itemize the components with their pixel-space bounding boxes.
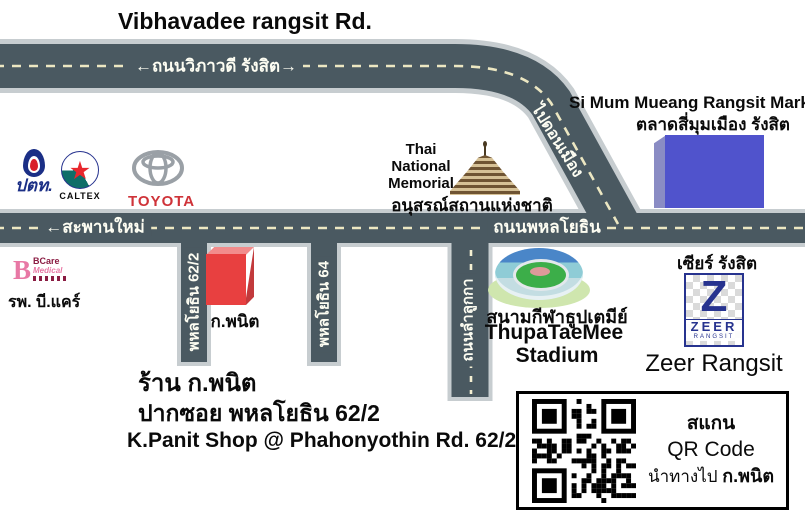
memorial-name-line2: National [388, 158, 454, 175]
road-label-saphan-mai: ←สะพานใหม่ [39, 218, 151, 237]
shop-soi-line: ปากซอย พหลโยธิน 62/2 [138, 396, 380, 432]
memorial-pagoda-icon [450, 141, 520, 195]
market-name-en: Si Mum Mueang Rangsit Market [569, 93, 805, 113]
page-title: Vibhavadee rangsit Rd. [118, 8, 372, 35]
memorial-name: Thai National Memorial [388, 141, 454, 192]
qr-caption: สแกน QR Code นำทางไป ก.พนิต [636, 411, 786, 490]
toyota-emblem-icon [130, 149, 186, 187]
market-building [654, 128, 764, 208]
bcare-b-icon: B [13, 256, 31, 284]
caltex-label: CALTEX [58, 191, 102, 201]
zeer-name-en: Zeer Rangsit [645, 350, 782, 378]
caltex-star-glyph: ★ [62, 154, 98, 188]
qr-nav-prefix: นำทางไป [648, 467, 722, 486]
bcare-hospital-label: รพ. บี.แคร์ [8, 290, 80, 315]
caltex-star-icon: ★ [61, 151, 99, 189]
memorial-name-line1: Thai [388, 141, 454, 158]
zeer-logo-sub: RANGSIT [686, 333, 742, 341]
stadium-name-en1: ThupaTaeMee [485, 321, 623, 345]
stadium-name-en2: Stadium [516, 344, 599, 368]
qr-code [532, 399, 636, 503]
zeer-z-icon: Z [686, 275, 742, 319]
caltex-logo: ★ CALTEX [58, 151, 102, 201]
bcare-logo-sub: Medical [33, 266, 67, 275]
qr-code-label: QR Code [636, 437, 786, 463]
qr-scan-label: สแกน [636, 411, 786, 437]
zeer-logo: Z ZEER RANGSIT [684, 273, 744, 347]
qr-nav-label: นำทางไป ก.พนิต [636, 463, 786, 490]
road-label-lam-luk-ka: ถนนลำลูกกา [459, 274, 478, 367]
bcare-logo-name: BCare [33, 256, 67, 266]
shop-en-line: K.Panit Shop @ Phahonyothin Rd. 62/2 [127, 429, 516, 453]
qr-nav-shop-name: ก.พนิต [722, 466, 774, 486]
toyota-logo: TOYOTA [128, 149, 188, 210]
bcare-logo: B BCare Medical [13, 256, 71, 290]
bcare-checker-strip [33, 276, 67, 281]
map-canvas: Vibhavadee rangsit Rd. ←ถนนวิภาวดี รังสิ… [0, 0, 805, 530]
road-label-soi-62-2: พหลโยธิน 62/2 [185, 248, 204, 357]
memorial-name-line3: Memorial [388, 175, 454, 192]
kpanit-building-label: ก.พนิต [211, 308, 260, 335]
ptt-label: ปตท. [8, 177, 60, 195]
memorial-thai-label: อนุสรณ์สถานแห่งชาติ [391, 192, 553, 219]
road-label-soi-64: พหลโยธิน 64 [315, 256, 334, 352]
ptt-flame-icon [23, 149, 45, 177]
stadium-icon [488, 246, 590, 308]
road-label-vibhavadee: ←ถนนวิภาวดี รังสิต→ [129, 57, 303, 76]
toyota-label: TOYOTA [128, 193, 188, 210]
ptt-logo: ปตท. [8, 149, 60, 195]
road-label-phahonyothin: ถนนพหลโยธิน [487, 218, 606, 237]
zeer-logo-name: ZEER [686, 319, 742, 333]
kpanit-building [206, 247, 254, 305]
qr-panel: สแกน QR Code นำทางไป ก.พนิต [516, 391, 789, 510]
